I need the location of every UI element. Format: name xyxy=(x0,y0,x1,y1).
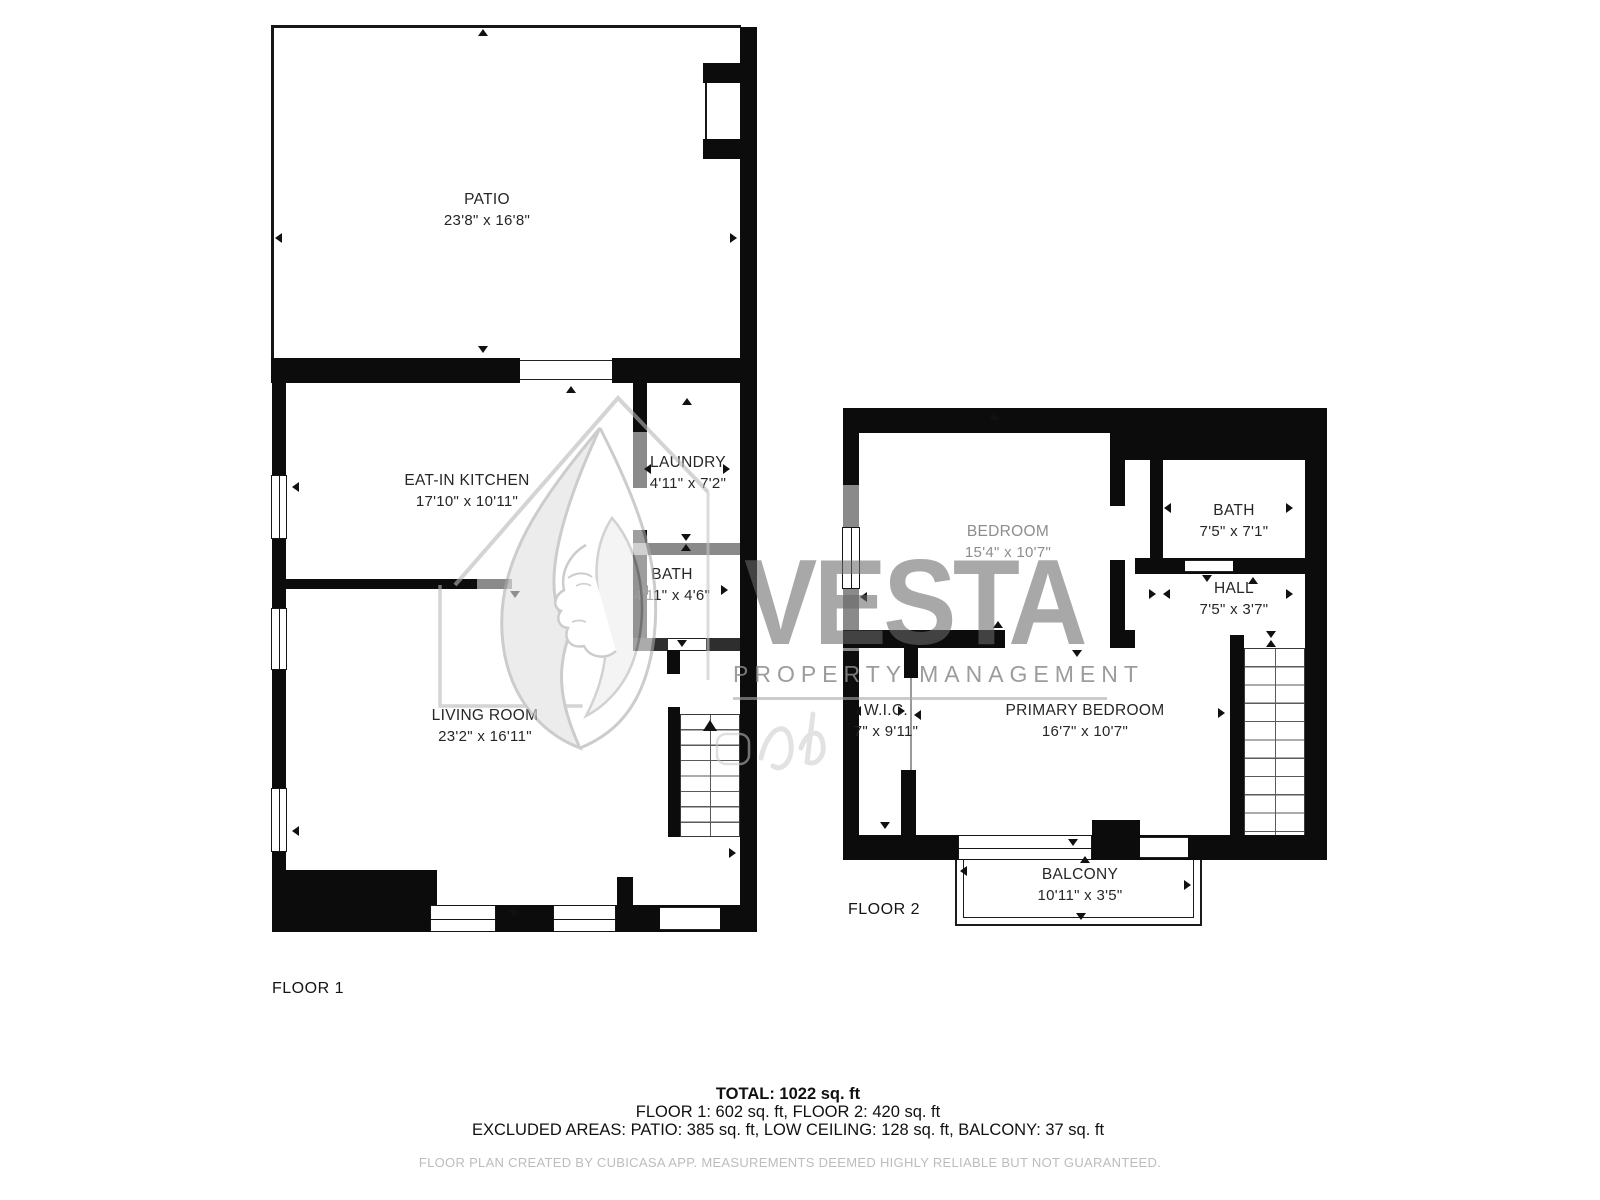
patio-wall-left xyxy=(271,25,274,361)
dim-arrow-icon xyxy=(292,826,299,836)
summary-total: TOTAL: 1022 sq. ft xyxy=(472,1086,1104,1104)
staircase-floor2 xyxy=(1244,648,1305,850)
dim-arrow-icon xyxy=(509,910,519,917)
dim-arrow-icon xyxy=(478,29,488,36)
floor2-right-wall xyxy=(1305,408,1327,860)
window xyxy=(553,905,616,932)
summary-excluded: EXCLUDED AREAS: PATIO: 385 sq. ft, LOW C… xyxy=(472,1122,1104,1140)
stairs2-left-wall xyxy=(1230,635,1244,860)
chimney-stub-top xyxy=(703,63,740,83)
chimney-stub-bottom xyxy=(703,139,740,159)
room-name: PATIO xyxy=(444,189,530,210)
dim-arrow-icon xyxy=(1068,839,1078,846)
dim-arrow-icon xyxy=(1266,640,1276,647)
room-label-patio: PATIO 23'8" x 16'8" xyxy=(444,189,530,231)
bedroom-right-wall xyxy=(1110,430,1125,506)
balcony-door-opening xyxy=(1140,837,1188,858)
room-label-hall: HALL 7'5" x 3'7" xyxy=(1200,578,1269,620)
dim-arrow-icon xyxy=(292,482,299,492)
watermark-tagline-text: PROPERTY MANAGEMENT xyxy=(733,663,1144,686)
window xyxy=(271,475,287,539)
room-label-primary: PRIMARY BEDROOM 16'7" x 10'7" xyxy=(1006,700,1165,742)
chimney-niche-line xyxy=(705,83,707,139)
floor1-label: FLOOR 1 xyxy=(272,980,344,998)
dim-arrow-icon xyxy=(1149,589,1156,599)
window xyxy=(430,905,496,932)
room-name: BALCONY xyxy=(1037,864,1122,885)
bath2-left-wall xyxy=(1150,460,1163,560)
room-label-balcony: BALCONY 10'11" x 3'5" xyxy=(1037,864,1122,906)
room-dims: 16'7" x 10'7" xyxy=(1006,721,1165,742)
dim-arrow-icon xyxy=(1286,503,1293,513)
room-name: BATH xyxy=(1200,500,1269,521)
balcony-wall-stub xyxy=(1092,820,1140,860)
window xyxy=(271,608,287,670)
entry-opening xyxy=(660,907,720,930)
dim-arrow-icon xyxy=(1080,856,1090,863)
dim-arrow-icon xyxy=(1163,589,1170,599)
dim-arrow-icon xyxy=(1164,503,1171,513)
room-name: HALL xyxy=(1200,578,1269,599)
living-wall-stub xyxy=(617,877,633,905)
low-ceiling-block xyxy=(1125,408,1327,460)
dim-arrow-icon xyxy=(1076,913,1086,920)
dim-arrow-icon xyxy=(729,848,736,858)
dim-arrow-icon xyxy=(989,413,999,420)
room-dims: 7'5" x 3'7" xyxy=(1200,599,1269,620)
dim-arrow-icon xyxy=(275,233,282,243)
room-name: PRIMARY BEDROOM xyxy=(1006,700,1165,721)
dim-arrow-icon xyxy=(478,346,488,353)
watermark-brand-text: VESTA xyxy=(744,541,1084,663)
dim-arrow-icon xyxy=(960,866,967,876)
bath2-door-opening xyxy=(1185,560,1233,572)
room-dims: 10'11" x 3'5" xyxy=(1037,885,1122,906)
dim-arrow-icon xyxy=(730,233,737,243)
stair-center-line xyxy=(1275,649,1276,849)
bedroom-bottom-wall-b xyxy=(1118,630,1135,648)
script-watermark xyxy=(695,700,915,785)
window xyxy=(271,788,287,852)
room-label-bath2: BATH 7'5" x 7'1" xyxy=(1200,500,1269,542)
summary-floors: FLOOR 1: 602 sq. ft, FLOOR 2: 420 sq. ft xyxy=(472,1104,1104,1122)
disclaimer-text: FLOOR PLAN CREATED BY CUBICASA APP. MEAS… xyxy=(419,1155,1161,1170)
floor1-bottom-block xyxy=(272,870,437,932)
area-summary: TOTAL: 1022 sq. ft FLOOR 1: 602 sq. ft, … xyxy=(472,1086,1104,1139)
floor2-label: FLOOR 2 xyxy=(848,901,920,919)
dim-arrow-icon xyxy=(1266,631,1276,638)
dim-arrow-icon xyxy=(1184,880,1191,890)
dim-arrow-icon xyxy=(1286,589,1293,599)
dim-arrow-icon xyxy=(880,822,890,829)
dim-arrow-icon xyxy=(1218,708,1225,718)
floor2-left-wall-gray xyxy=(843,485,859,527)
floor-plan-canvas: PATIO 23'8" x 16'8" EAT-IN KITCHEN 17'10… xyxy=(0,0,1600,1200)
room-dims: 7'5" x 7'1" xyxy=(1200,521,1269,542)
patio-wall-top xyxy=(271,25,741,28)
room-dims: 23'8" x 16'8" xyxy=(444,210,530,231)
